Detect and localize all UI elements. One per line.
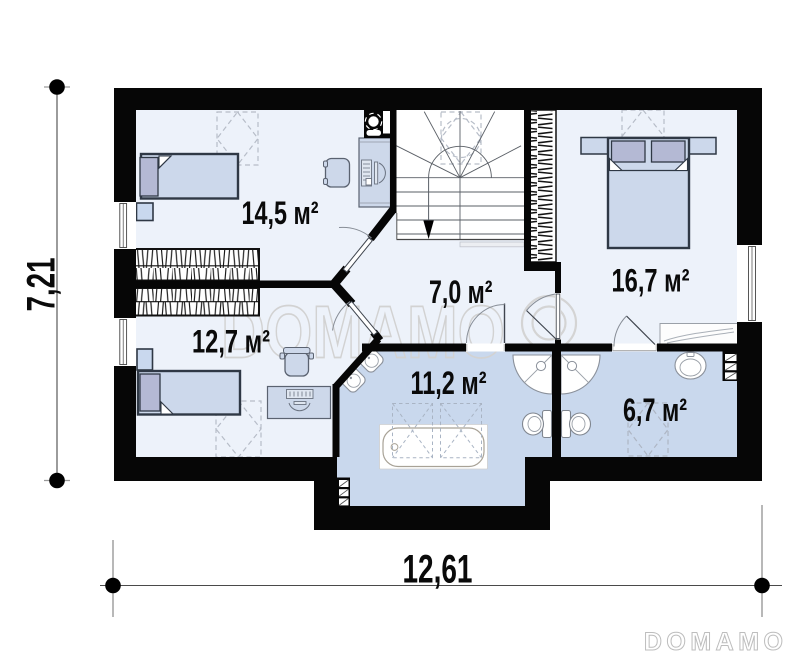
svg-text:14,5 м²: 14,5 м² bbox=[242, 195, 319, 231]
svg-text:7,0 м²: 7,0 м² bbox=[429, 274, 493, 310]
svg-text:12,7 м²: 12,7 м² bbox=[192, 324, 270, 360]
svg-text:6,7 м²: 6,7 м² bbox=[623, 392, 687, 428]
svg-text:DOMAMO: DOMAMO bbox=[644, 628, 788, 656]
svg-text:7,21: 7,21 bbox=[20, 258, 64, 312]
svg-text:12,61: 12,61 bbox=[403, 548, 473, 592]
svg-text:11,2 м²: 11,2 м² bbox=[411, 365, 487, 401]
svg-text:16,7 м²: 16,7 м² bbox=[612, 263, 690, 299]
